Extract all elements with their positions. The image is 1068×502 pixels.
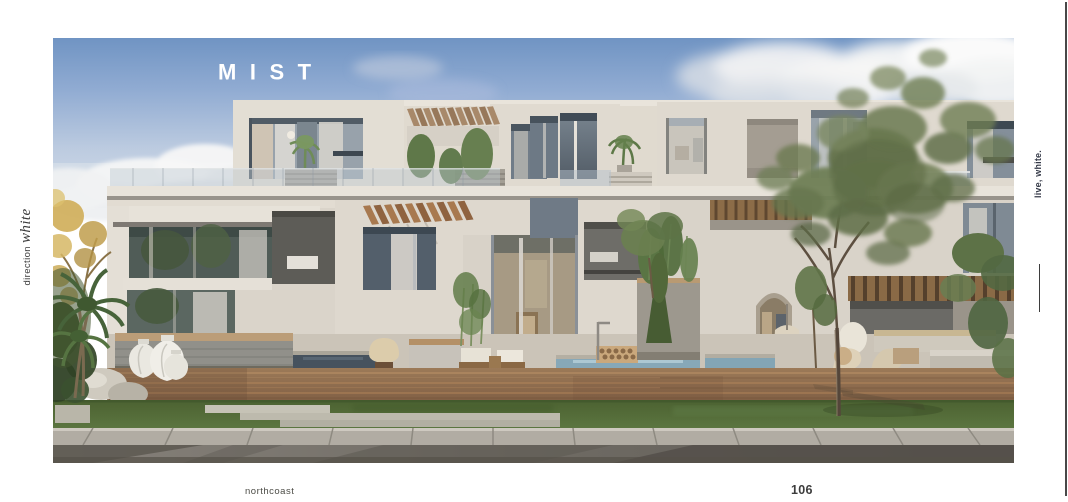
svg-text:MIST: MIST bbox=[218, 60, 325, 85]
